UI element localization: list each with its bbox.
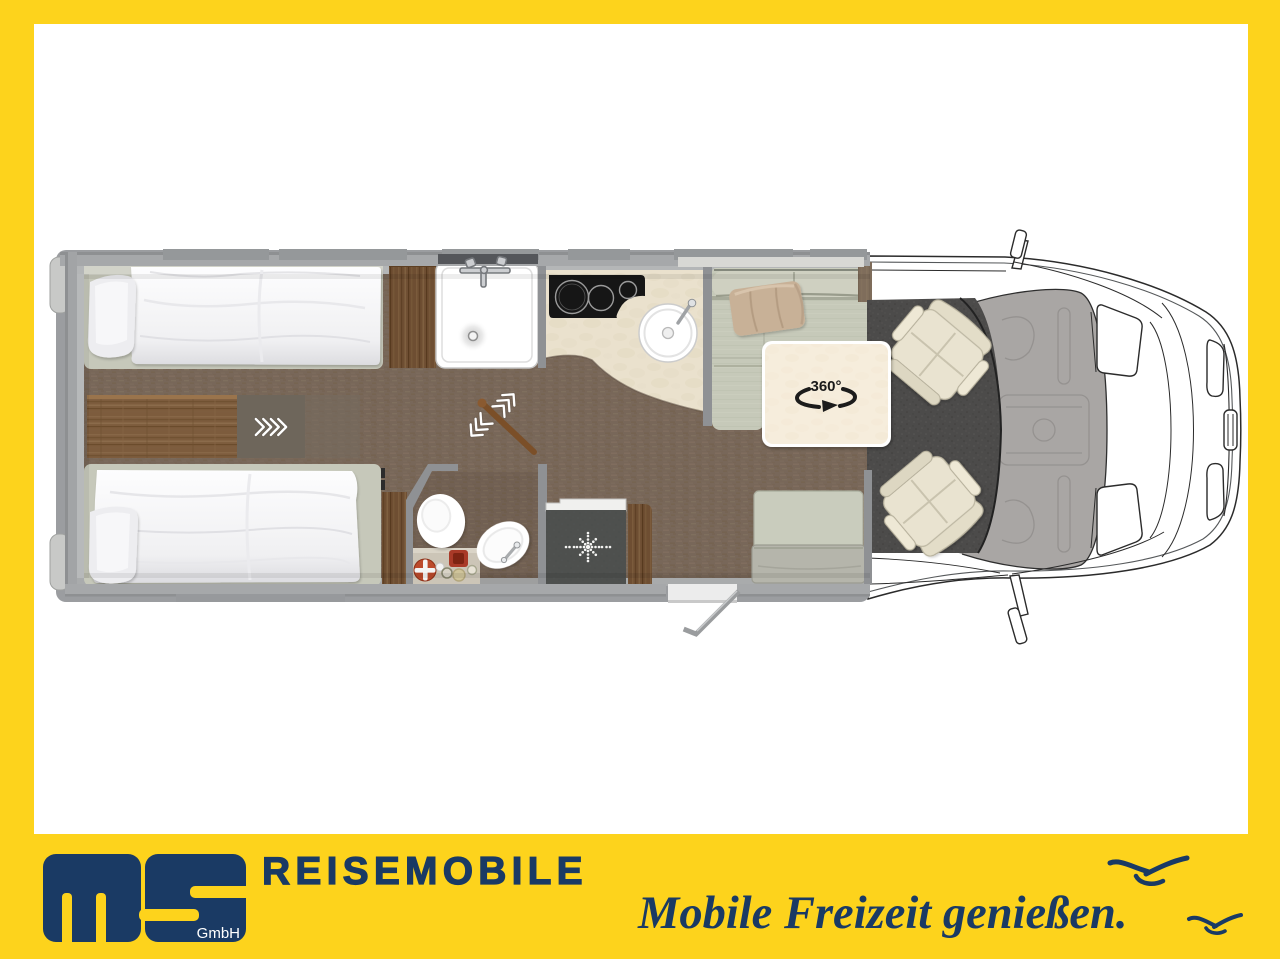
- svg-text:GmbH: GmbH: [197, 925, 240, 942]
- svg-text:Mobile Freizeit genießen.: Mobile Freizeit genießen.: [637, 888, 1128, 939]
- svg-text:360°: 360°: [810, 378, 841, 395]
- svg-text:REISEMOBILE: REISEMOBILE: [262, 850, 588, 893]
